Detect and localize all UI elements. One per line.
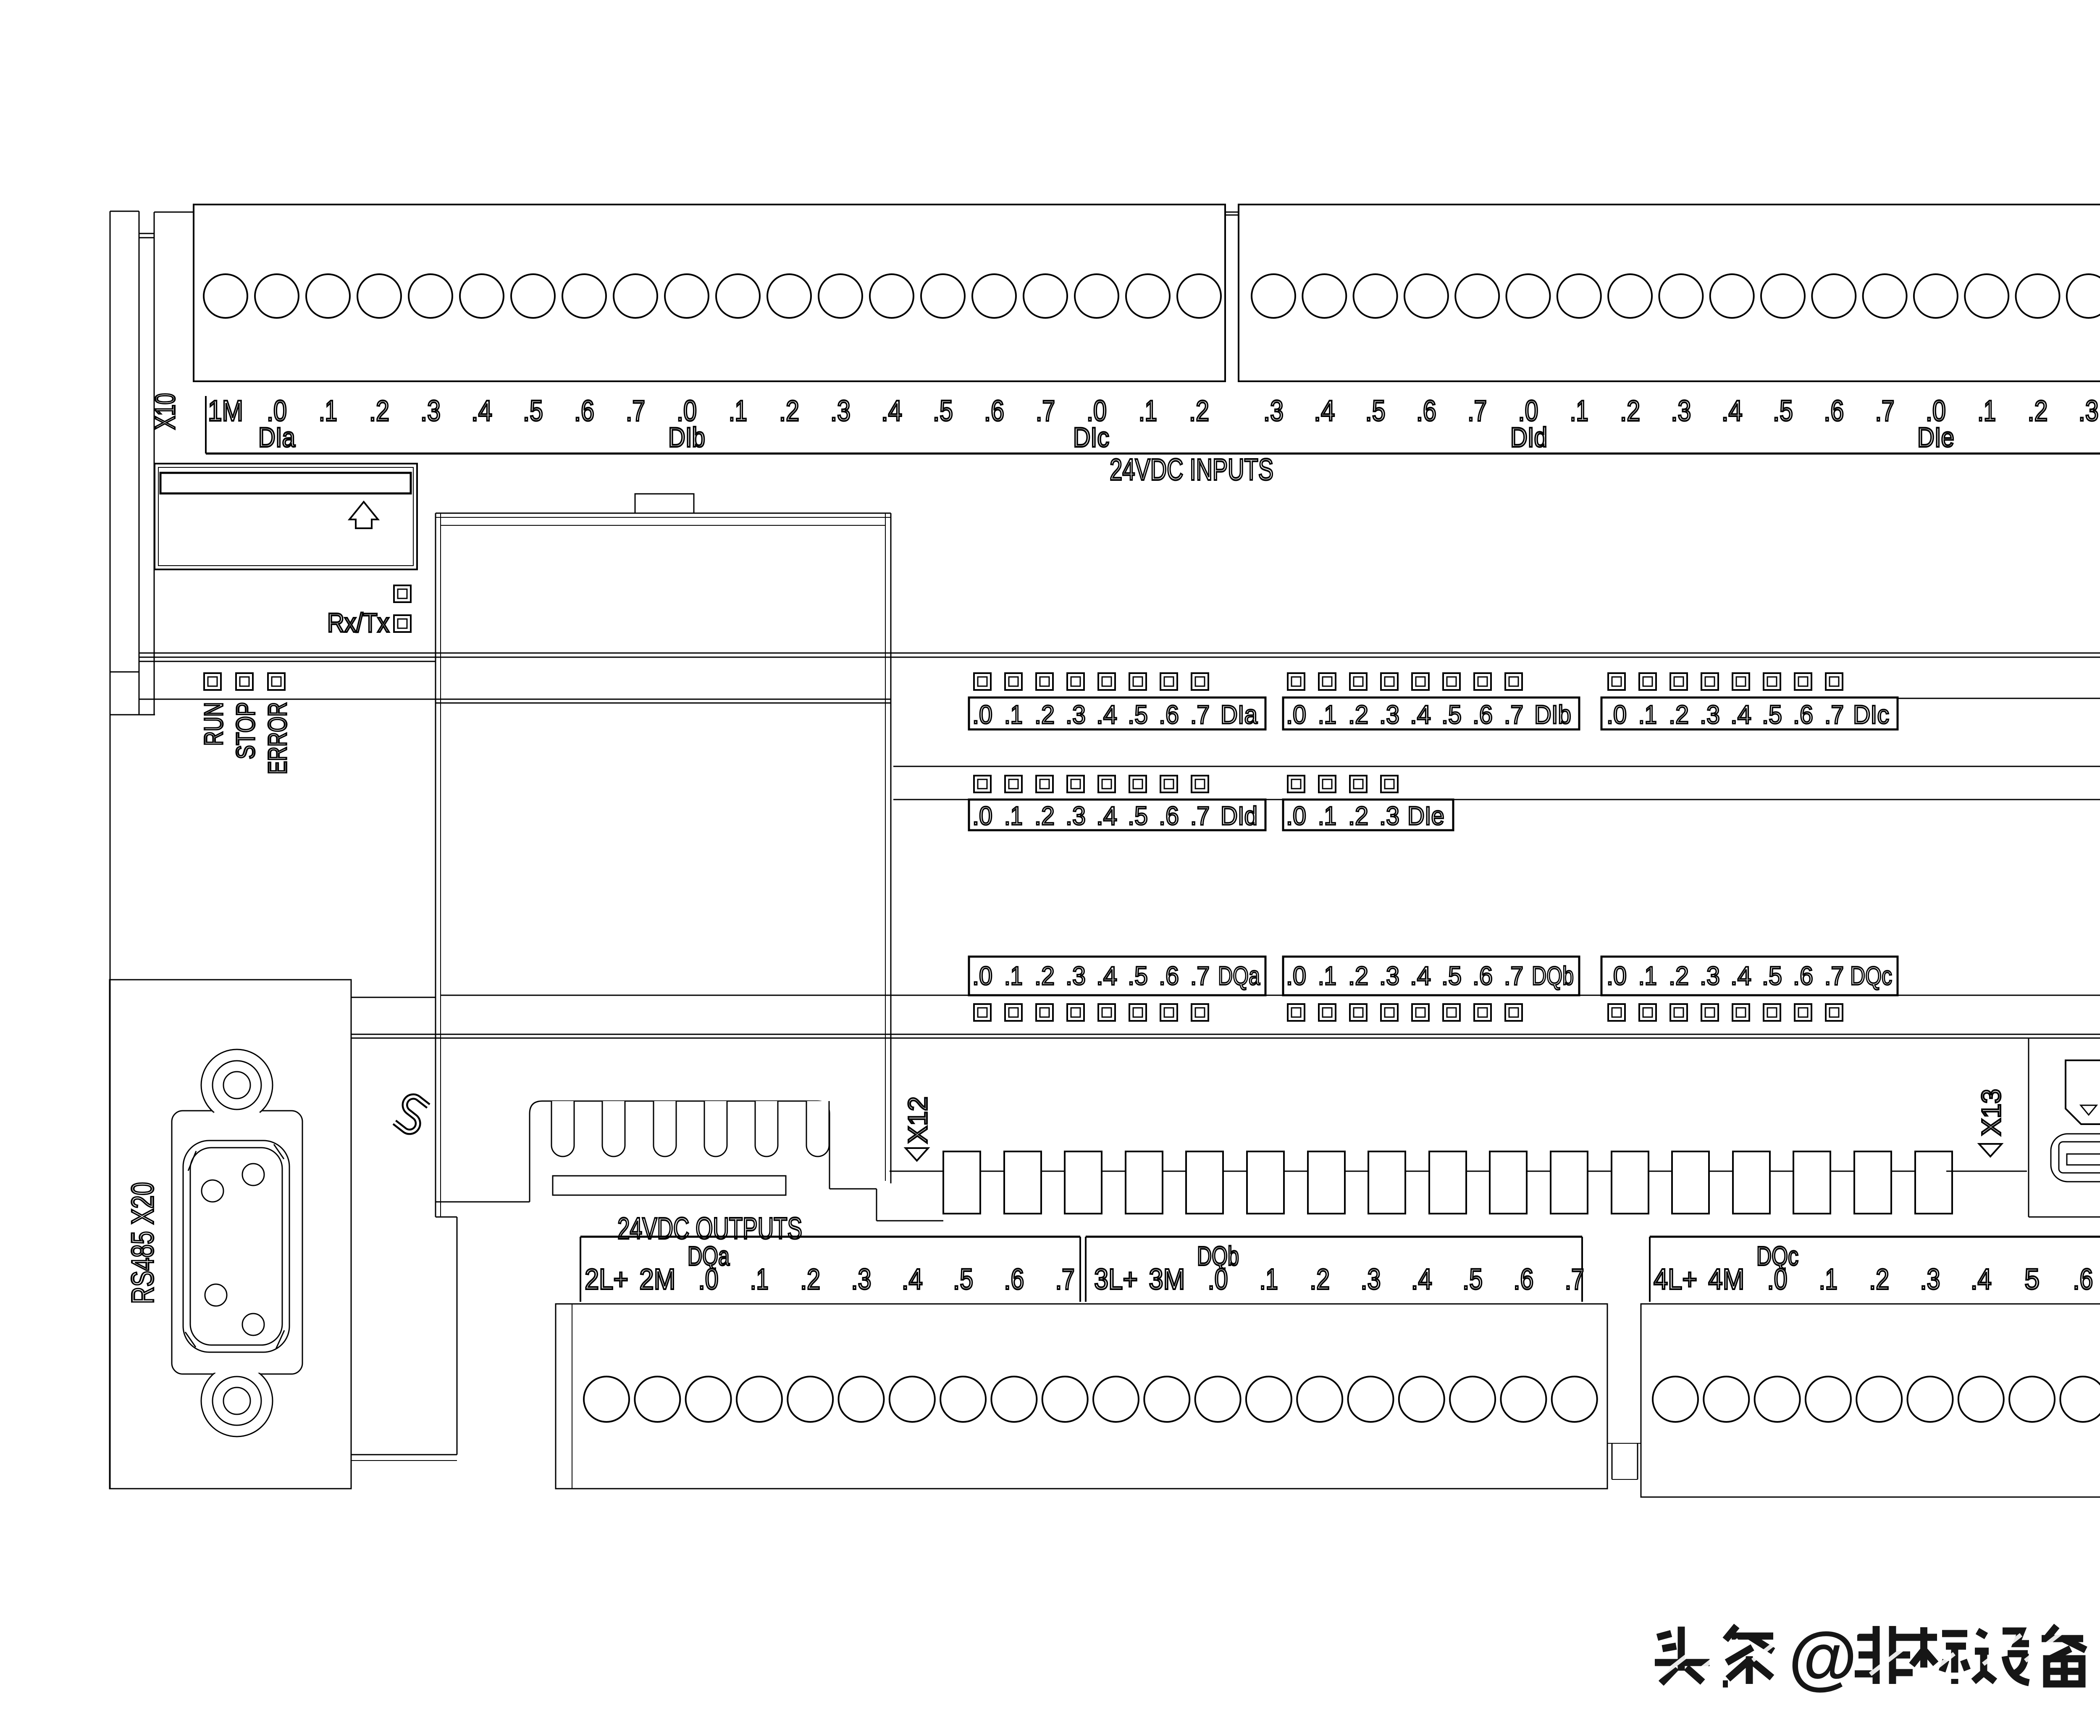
svg-text:.2: .2 <box>1310 1263 1330 1295</box>
svg-text:.5: .5 <box>1128 802 1148 831</box>
svg-text:.3: .3 <box>1700 962 1720 991</box>
svg-text:DQb: DQb <box>1532 962 1574 991</box>
svg-text:5: 5 <box>2024 1263 2040 1295</box>
svg-text:.3: .3 <box>1671 394 1691 427</box>
svg-text:X12: X12 <box>903 1096 933 1143</box>
svg-text:.0: .0 <box>1286 700 1306 729</box>
svg-text:.3: .3 <box>1263 394 1284 427</box>
svg-text:.3: .3 <box>1066 802 1086 831</box>
svg-text:DId: DId <box>1510 422 1547 453</box>
svg-text:.3: .3 <box>1379 962 1399 991</box>
svg-text:.4: .4 <box>902 1263 923 1295</box>
svg-text:.1: .1 <box>750 1263 769 1295</box>
svg-text:DId: DId <box>1221 802 1257 831</box>
svg-text:DIb: DIb <box>1534 700 1571 729</box>
svg-text:.5: .5 <box>1128 700 1148 729</box>
svg-text:.0: .0 <box>1286 962 1306 991</box>
svg-text:.0: .0 <box>972 802 992 831</box>
svg-text:.0: .0 <box>698 1263 719 1295</box>
svg-text:.4: .4 <box>1410 700 1431 729</box>
svg-text:.4: .4 <box>881 394 902 427</box>
svg-text:.1: .1 <box>1004 700 1023 729</box>
svg-text:.3: .3 <box>420 394 441 427</box>
svg-text:.2: .2 <box>800 1263 820 1295</box>
svg-text:.2: .2 <box>1189 394 1209 427</box>
svg-text:.1: .1 <box>1318 962 1336 991</box>
svg-text:DIc: DIc <box>1853 700 1889 729</box>
svg-text:.6: .6 <box>1793 700 1813 729</box>
svg-text:.7: .7 <box>1055 1263 1075 1295</box>
svg-text:X10: X10 <box>150 393 181 430</box>
svg-text:.3: .3 <box>851 1263 871 1295</box>
svg-text:.0: .0 <box>972 962 992 991</box>
svg-text:.2: .2 <box>1620 394 1640 427</box>
svg-text:.4: .4 <box>471 394 492 427</box>
svg-text:.4: .4 <box>1096 700 1117 729</box>
svg-text:.6: .6 <box>2073 1263 2093 1295</box>
svg-text:.6: .6 <box>1793 962 1813 991</box>
svg-text:.7: .7 <box>1190 962 1210 991</box>
svg-text:.0: .0 <box>1606 700 1627 729</box>
svg-text:.2: .2 <box>1348 700 1368 729</box>
svg-text:.2: .2 <box>1034 802 1055 831</box>
svg-text:3M: 3M <box>1149 1263 1185 1295</box>
svg-text:.6: .6 <box>1473 962 1493 991</box>
svg-text:.5: .5 <box>523 394 543 427</box>
svg-text:.0: .0 <box>1286 802 1306 831</box>
svg-text:DIb: DIb <box>668 422 705 453</box>
svg-text:.7: .7 <box>1467 394 1487 427</box>
svg-text:.5: .5 <box>1441 700 1462 729</box>
svg-text:.5: .5 <box>1762 700 1782 729</box>
svg-text:.4: .4 <box>1096 802 1117 831</box>
svg-text:DIe: DIe <box>1407 802 1444 831</box>
svg-text:.7: .7 <box>1036 394 1055 427</box>
svg-text:.4: .4 <box>1410 962 1431 991</box>
svg-text:.2: .2 <box>1348 802 1368 831</box>
svg-text:.3: .3 <box>1361 1263 1381 1295</box>
svg-text:.7: .7 <box>1824 700 1844 729</box>
svg-text:.4: .4 <box>1722 394 1743 427</box>
svg-text:.6: .6 <box>1159 700 1179 729</box>
svg-text:.6: .6 <box>1416 394 1436 427</box>
svg-text:.3: .3 <box>2079 394 2099 427</box>
svg-text:RUN: RUN <box>199 702 228 746</box>
svg-text:.6: .6 <box>984 394 1004 427</box>
svg-text:.1: .1 <box>1318 802 1336 831</box>
svg-text:.3: .3 <box>1700 700 1720 729</box>
svg-text:.1: .1 <box>1004 962 1023 991</box>
svg-text:.3: .3 <box>1066 700 1086 729</box>
svg-text:.6: .6 <box>1004 1263 1024 1295</box>
svg-text:.4: .4 <box>1971 1263 1992 1295</box>
svg-text:.0: .0 <box>1767 1263 1788 1295</box>
svg-text:.6: .6 <box>1513 1263 1533 1295</box>
svg-text:.2: .2 <box>1034 962 1055 991</box>
svg-text:.4: .4 <box>1730 700 1751 729</box>
svg-text:.3: .3 <box>1066 962 1086 991</box>
svg-text:.5: .5 <box>953 1263 973 1295</box>
svg-text:.6: .6 <box>574 394 594 427</box>
svg-text:.5: .5 <box>933 394 953 427</box>
svg-text:.1: .1 <box>319 394 337 427</box>
svg-text:24VDC INPUTS: 24VDC INPUTS <box>1110 453 1273 487</box>
svg-text:.7: .7 <box>626 394 645 427</box>
svg-text:.0: .0 <box>972 700 992 729</box>
svg-text:.7: .7 <box>1824 962 1844 991</box>
svg-text:DIa: DIa <box>258 422 295 453</box>
svg-text:.1: .1 <box>1260 1263 1278 1295</box>
svg-text:Rx/Tx: Rx/Tx <box>327 608 389 638</box>
svg-text:.1: .1 <box>1318 700 1336 729</box>
svg-text:.4: .4 <box>1314 394 1335 427</box>
svg-text:.6: .6 <box>1473 700 1493 729</box>
svg-text:2M: 2M <box>639 1263 675 1295</box>
svg-text:24VDC OUTPUTS: 24VDC OUTPUTS <box>617 1212 802 1246</box>
svg-text:.1: .1 <box>729 394 747 427</box>
svg-text:.0: .0 <box>1606 962 1627 991</box>
svg-text:DIa: DIa <box>1221 700 1257 729</box>
svg-text:.4: .4 <box>1411 1263 1432 1295</box>
svg-text:.2: .2 <box>2028 394 2048 427</box>
svg-text:1M: 1M <box>208 394 243 427</box>
svg-text:.5: .5 <box>1762 962 1782 991</box>
svg-text:.3: .3 <box>1920 1263 1940 1295</box>
svg-text:.7: .7 <box>1190 802 1210 831</box>
svg-text:.2: .2 <box>1348 962 1368 991</box>
svg-text:.5: .5 <box>1128 962 1148 991</box>
svg-text:STOP: STOP <box>231 702 260 759</box>
svg-text:.7: .7 <box>1504 700 1523 729</box>
svg-text:4M: 4M <box>1708 1263 1744 1295</box>
svg-text:.5: .5 <box>1365 394 1386 427</box>
svg-text:DIe: DIe <box>1917 422 1954 453</box>
svg-text:2L+: 2L+ <box>585 1263 628 1295</box>
svg-text:.0: .0 <box>1208 1263 1228 1295</box>
svg-text:.6: .6 <box>1159 802 1179 831</box>
svg-text:X13: X13 <box>1976 1089 2006 1136</box>
svg-text:.3: .3 <box>1379 802 1399 831</box>
svg-text:@: @ <box>1788 1618 1857 1697</box>
svg-text:.7: .7 <box>1504 962 1523 991</box>
svg-text:.1: .1 <box>1004 802 1023 831</box>
svg-text:.4: .4 <box>1730 962 1751 991</box>
svg-text:.7: .7 <box>1565 1263 1584 1295</box>
svg-text:ERROR: ERROR <box>263 702 292 774</box>
svg-text:.7: .7 <box>1190 700 1210 729</box>
svg-text:4L+: 4L+ <box>1654 1263 1697 1295</box>
svg-text:.6: .6 <box>1824 394 1844 427</box>
svg-text:.2: .2 <box>779 394 799 427</box>
svg-text:DIc: DIc <box>1073 422 1109 453</box>
svg-text:.6: .6 <box>1159 962 1179 991</box>
svg-text:3L+: 3L+ <box>1094 1263 1138 1295</box>
svg-text:.1: .1 <box>1638 962 1657 991</box>
svg-text:.1: .1 <box>1570 394 1588 427</box>
svg-text:DQa: DQa <box>1218 962 1260 991</box>
svg-text:.2: .2 <box>1034 700 1055 729</box>
svg-text:.3: .3 <box>1379 700 1399 729</box>
svg-text:.2: .2 <box>1869 1263 1889 1295</box>
svg-text:RS485 X20: RS485 X20 <box>125 1182 160 1304</box>
svg-text:.5: .5 <box>1773 394 1793 427</box>
svg-text:.5: .5 <box>1441 962 1462 991</box>
svg-text:.4: .4 <box>1096 962 1117 991</box>
svg-text:.2: .2 <box>1669 962 1689 991</box>
svg-text:.1: .1 <box>1819 1263 1837 1295</box>
svg-text:.5: .5 <box>1462 1263 1483 1295</box>
svg-text:.1: .1 <box>1139 394 1157 427</box>
svg-text:DQc: DQc <box>1850 962 1892 991</box>
svg-text:.1: .1 <box>1638 700 1657 729</box>
svg-text:.2: .2 <box>369 394 389 427</box>
svg-text:.2: .2 <box>1669 700 1689 729</box>
svg-text:.7: .7 <box>1875 394 1895 427</box>
svg-text:.3: .3 <box>830 394 850 427</box>
svg-text:.1: .1 <box>1977 394 1996 427</box>
